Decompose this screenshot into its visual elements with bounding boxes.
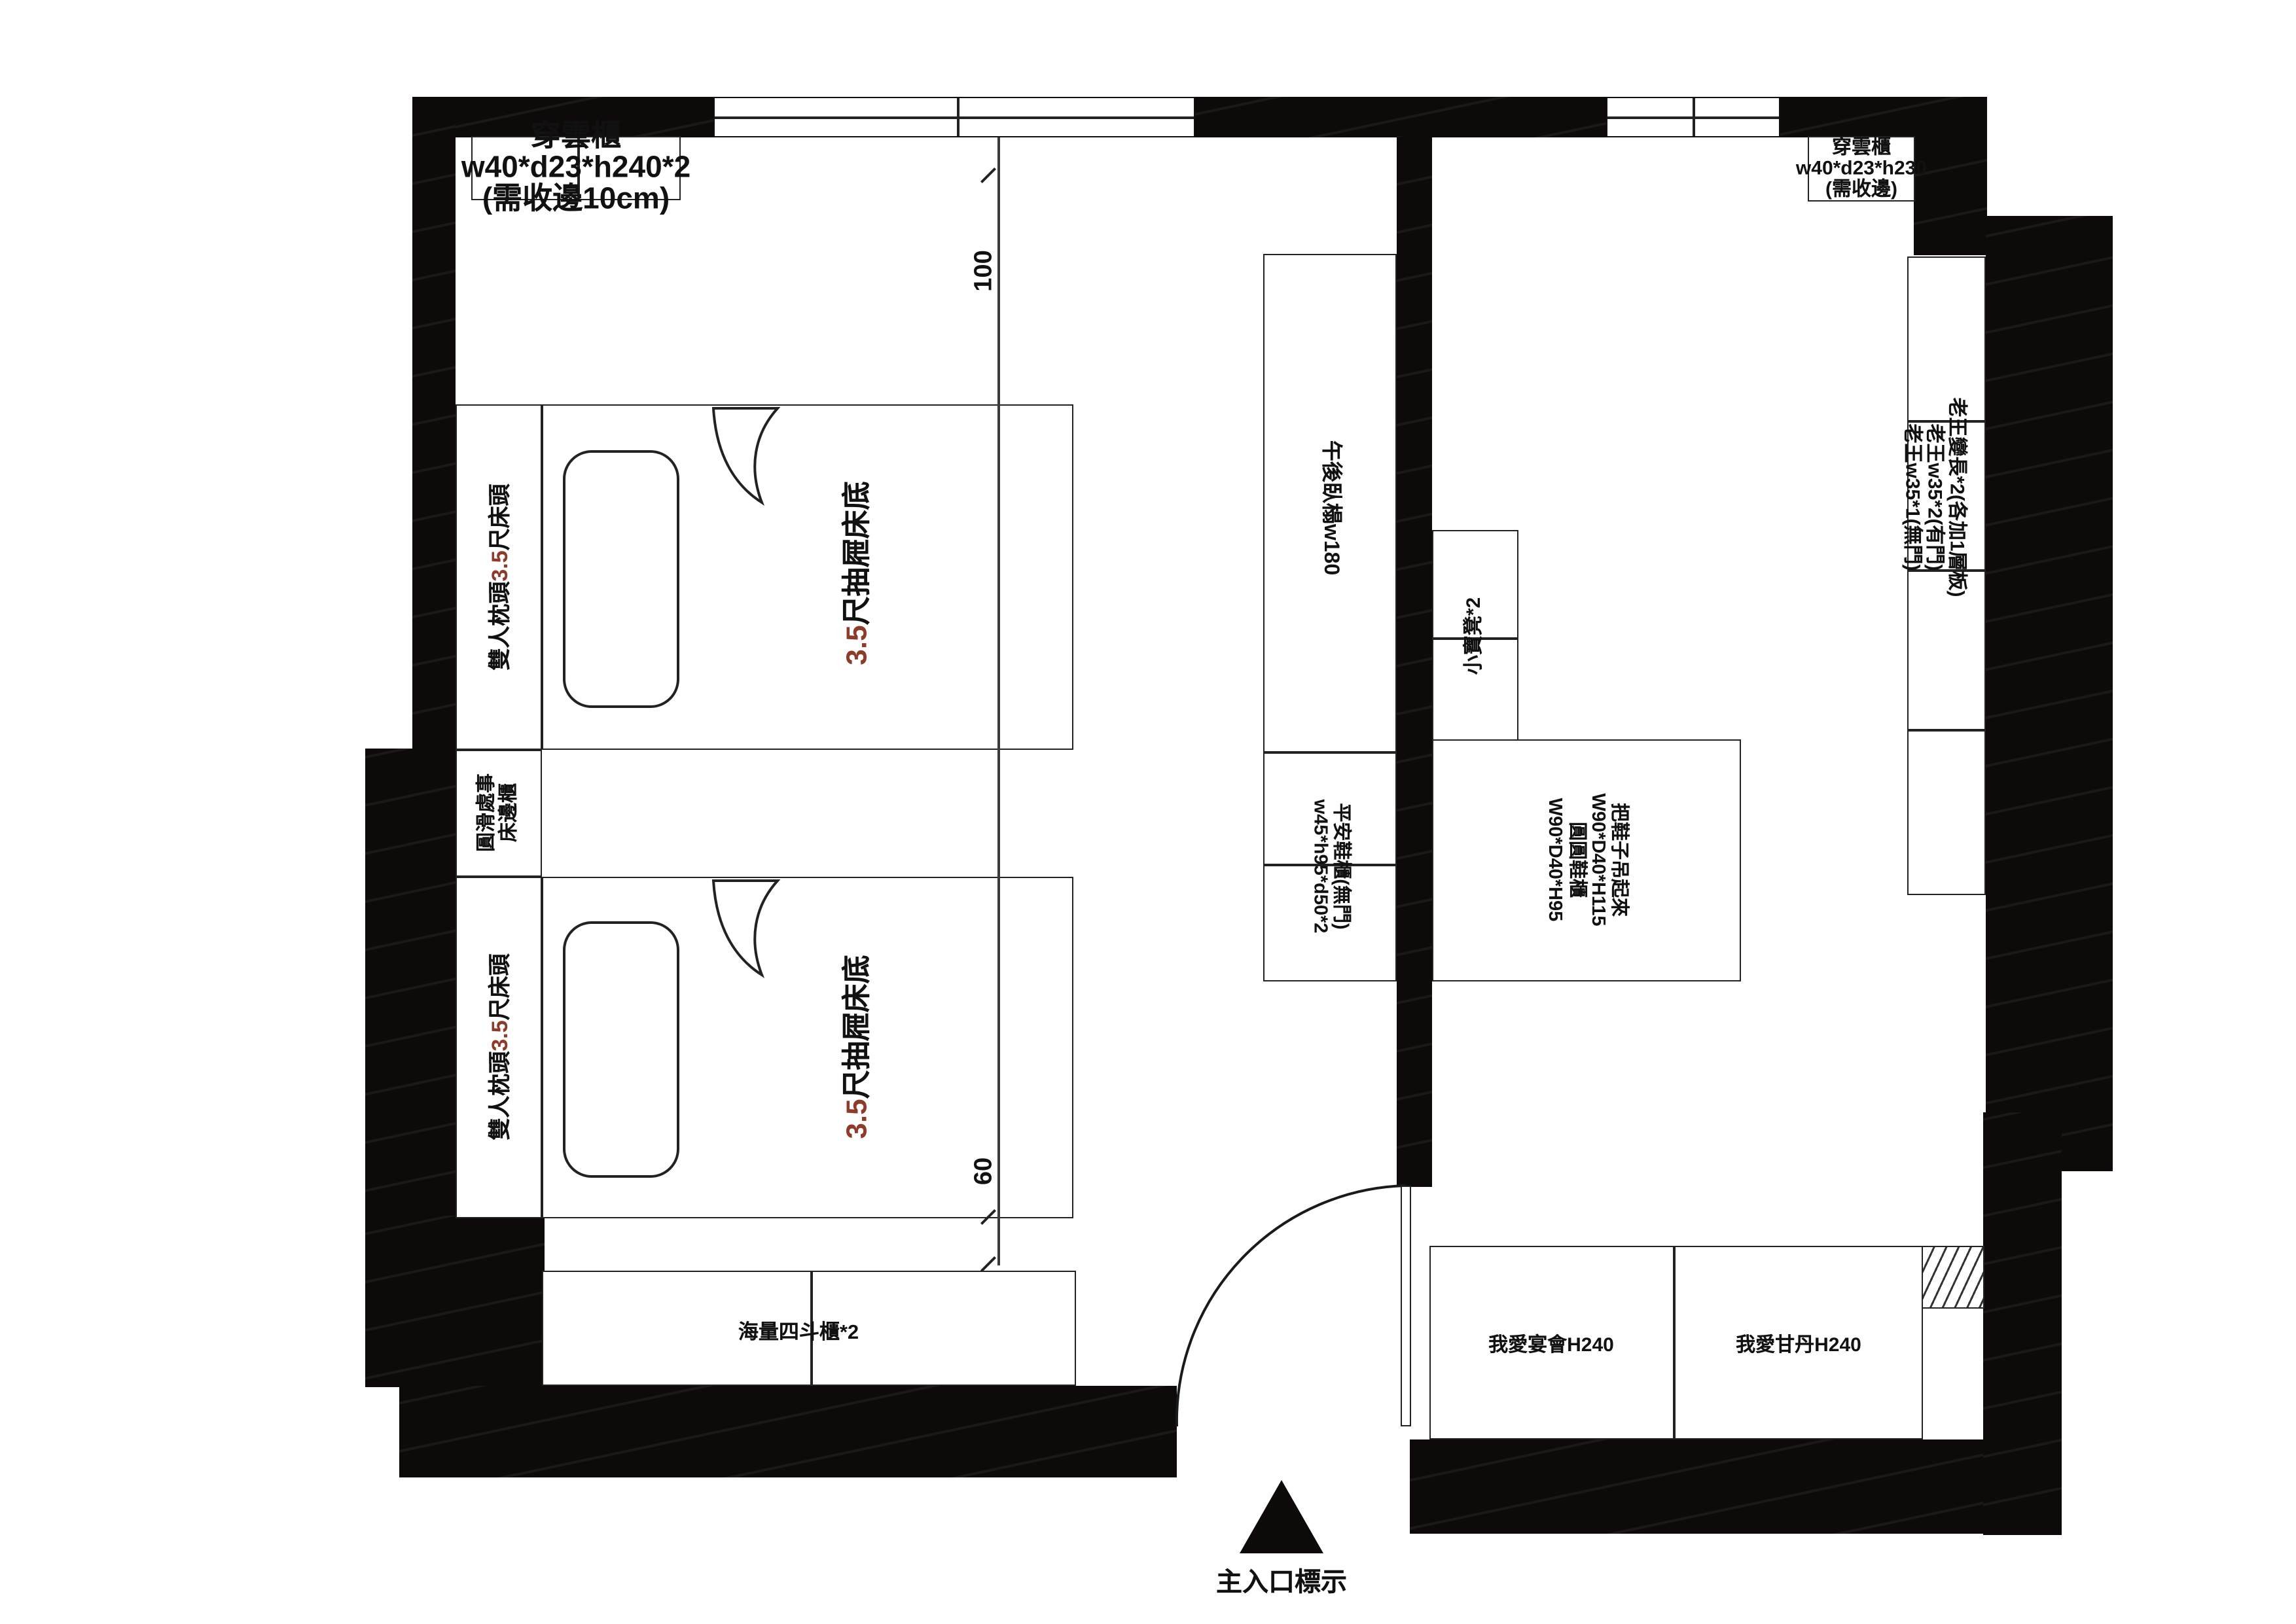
- entrance-triangle-icon: [1237, 1477, 1326, 1556]
- plan-scale-wrapper: 穿雲櫃 w40*d23*h240*2 (需收邊10cm) 雙人枕頭3.5尺床頭 …: [0, 0, 2296, 1624]
- entrance-label: 主入口標示: [1216, 1561, 1347, 1598]
- door-leaf: [1401, 1186, 1411, 1426]
- door-swing-arc-icon: [0, 0, 2296, 1624]
- floor-plan: 穿雲櫃 w40*d23*h240*2 (需收邊10cm) 雙人枕頭3.5尺床頭 …: [0, 0, 2296, 1624]
